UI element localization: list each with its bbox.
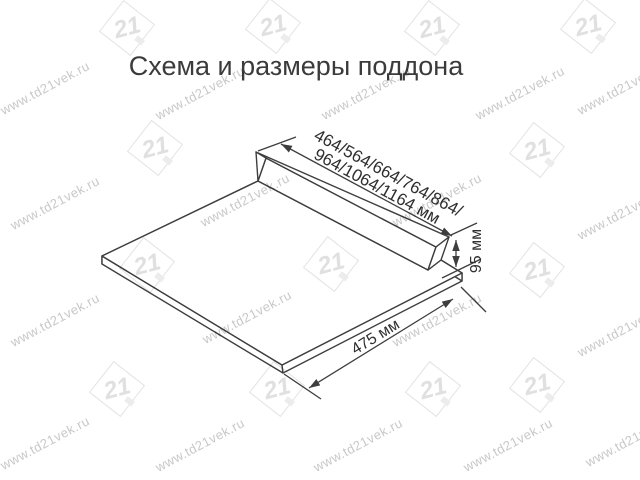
height-dimension-label: 95 мм bbox=[468, 229, 485, 273]
depth-extension-line-left bbox=[284, 374, 321, 399]
page-title: Схема и размеры поддона bbox=[0, 51, 592, 82]
depth-extension-line-right bbox=[461, 287, 486, 312]
product-schematic-image: 464/564/664/764/864/ 964/1064/1164 мм 95… bbox=[0, 0, 640, 480]
